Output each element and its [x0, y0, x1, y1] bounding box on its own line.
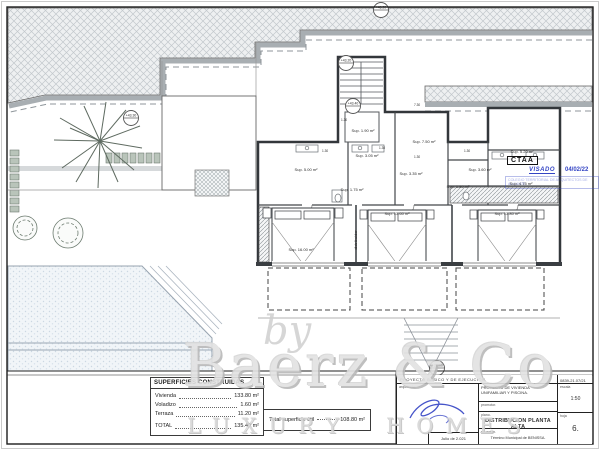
situacion-label: situación. [481, 430, 555, 434]
windows [256, 261, 562, 267]
dim-label: 1.30 [341, 118, 347, 122]
level-marker: +38.80 [430, 361, 445, 376]
area-row: Voladizo 1.60 m² [155, 401, 259, 410]
bed-2 [360, 210, 434, 264]
date-cell: Julio de 2.021 [428, 432, 478, 444]
ctaa-logo: CTAA [507, 156, 538, 165]
room-label: Sup. 1.75 m² [341, 187, 365, 192]
situacion-value: Término Municipal de BENISSA. [481, 436, 555, 440]
terrace-dashed-1 [268, 268, 350, 310]
room-label: Sup. 1.80 m² [447, 184, 471, 189]
area-row-total: TOTAL 135.40 m² [155, 422, 259, 431]
room-label: Sup. 13.80 m² [494, 211, 520, 216]
pool [8, 266, 222, 371]
room-label: Sup. 3.60 m² [469, 167, 493, 172]
signature [400, 392, 476, 432]
plan-sheet: Sup. 5.00 m² Sup. 3.05 m² Sup. 1.75 m² S… [0, 0, 600, 450]
escala-cell: escala 1:50 [557, 384, 593, 413]
hoja-cell: hoja 6. [557, 413, 593, 444]
area-row: Terraza 11.20 m² [155, 410, 259, 419]
terrace-dashed-2 [362, 268, 447, 310]
tb-project: PROYECTO BÁSICO Y DE EJECUCIÓN. [397, 375, 557, 384]
bush [13, 216, 83, 248]
hedge-column [10, 150, 19, 212]
area-row: Vivienda 133.80 m² [155, 392, 259, 401]
svg-text:+43.20: +43.20 [341, 59, 352, 63]
plano-cell: plano. DISTRIBUCION PLANTA ALTA [478, 412, 557, 429]
tb-code: 0839-21.07/21 [557, 375, 593, 384]
room-label: Sup. 1.90 m² [352, 128, 376, 133]
paved-patch [195, 170, 229, 196]
visado-text: VISADO [529, 167, 555, 174]
level-marker: +43.30 [124, 111, 139, 126]
svg-text:+43.30: +43.30 [126, 114, 137, 118]
room-label: Sup. 7.50 m² [413, 139, 437, 144]
promotor-cell: promotor. [478, 402, 557, 412]
room-label: Sup. 5.20 m² [511, 149, 535, 154]
areas-table: SUPERFICIES CONSTRUIDAS Vivienda 133.80 … [150, 377, 264, 436]
bed-1 [263, 208, 343, 264]
terrace-dashed-3 [456, 268, 544, 310]
svg-text:+38.80: +38.80 [432, 364, 443, 368]
room-label: Sup. 3.35 m² [400, 171, 424, 176]
promotor-label: promotor. [481, 403, 555, 407]
room-label: Sup. 16.00 m² [288, 247, 314, 252]
college-text: COLEGIO TERRITORIAL DE ARQUITECTOS DE AL… [505, 176, 599, 189]
dim-label: 1.30 [379, 146, 385, 150]
hedge-base-strip [8, 166, 164, 171]
useful-area-box: Total superficie útil 108.80 m² [263, 409, 371, 431]
escala-label: escala [560, 385, 591, 389]
situacion-cell: situación. Término Municipal de BENISSA. [478, 429, 557, 444]
plano-label: plano. [481, 413, 555, 417]
title-block: PROYECTO BÁSICO Y DE EJECUCIÓN. 0839-21.… [396, 375, 592, 444]
svg-text:+43.40: +43.40 [348, 102, 359, 106]
room-label: Sup. 13.60 m² [384, 211, 410, 216]
dim-label: 1.30 [322, 149, 328, 153]
useful-area-value: 108.80 m² [340, 417, 365, 423]
tb-description: PROYECTO DE VIVIENDA UNIFAMILIAR Y PISCI… [478, 384, 557, 402]
dim-label: 7.30 [414, 103, 420, 107]
level-marker: +43.20 [339, 56, 354, 71]
areas-table-title: SUPERFICIES CONSTRUIDAS [151, 378, 263, 389]
visado-stamp: CTAA VISADO 04/02/22 COLEGIO TERRITORIAL… [505, 156, 597, 198]
areas-table-rows: Vivienda 133.80 m² Voladizo 1.60 m² Terr… [151, 389, 263, 435]
hoja-value: 6. [560, 424, 591, 433]
level-marker: +43.40 [346, 99, 361, 114]
room-label: Sup. 3.05 m² [356, 153, 380, 158]
room-label: distribuidor [353, 230, 358, 250]
hedge-row [106, 153, 160, 163]
hoja-label: hoja [560, 414, 591, 418]
level-marker: +46.20 [374, 3, 389, 18]
architect-label: arquitecto. [399, 385, 476, 389]
room-label: Sup. 5.00 m² [295, 167, 319, 172]
useful-area-label: Total superficie útil [269, 417, 314, 423]
dim-label: 1.30 [464, 149, 470, 153]
visado-date: 04/02/22 [565, 167, 588, 173]
dim-label: 1.30 [414, 155, 420, 159]
bed-3 [470, 210, 544, 264]
terrace-dashed-outlines [268, 268, 544, 310]
escala-value: 1:50 [560, 396, 591, 402]
